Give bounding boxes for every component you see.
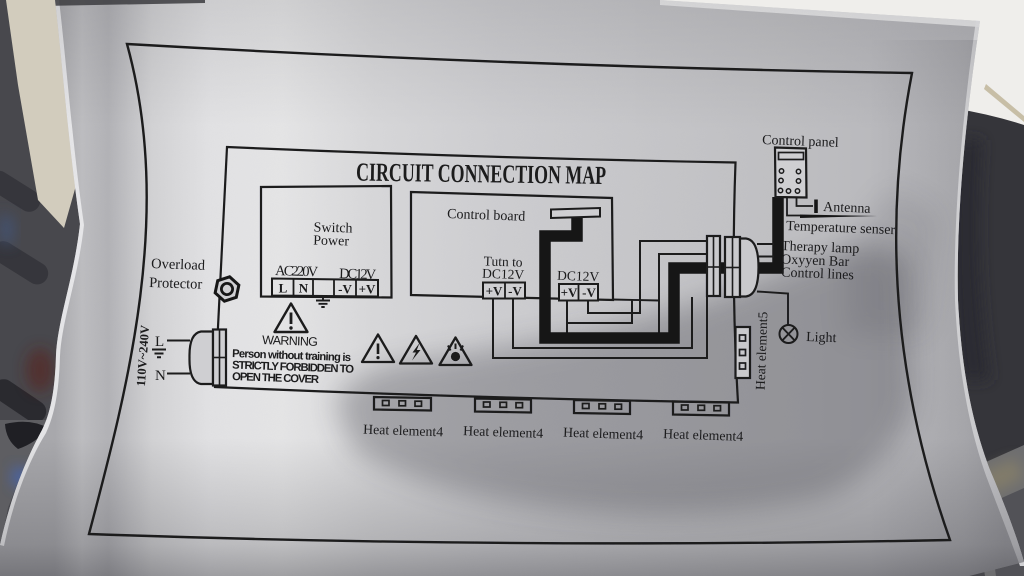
svg-text:-V: -V xyxy=(582,285,596,300)
svg-text:Heat element5: Heat element5 xyxy=(753,311,771,390)
svg-text:WARNING: WARNING xyxy=(262,333,319,349)
svg-text:+V: +V xyxy=(486,284,503,299)
svg-text:Light: Light xyxy=(806,330,837,346)
svg-text:Heat element4: Heat element4 xyxy=(363,422,444,440)
svg-text:Heat element4: Heat element4 xyxy=(563,425,644,443)
svg-text:Control board: Control board xyxy=(447,207,526,225)
svg-text:DC12V: DC12V xyxy=(557,268,600,284)
svg-text:-V: -V xyxy=(508,284,522,299)
svg-text:-V: -V xyxy=(338,282,352,297)
svg-text:N: N xyxy=(299,281,309,296)
svg-text:L: L xyxy=(155,334,164,350)
svg-text:Antenna: Antenna xyxy=(823,200,872,217)
svg-text:DC12V: DC12V xyxy=(482,266,525,282)
svg-text:Control lines: Control lines xyxy=(781,266,854,284)
svg-text:Heat element4: Heat element4 xyxy=(663,426,744,444)
svg-text:CIRCUIT CONNECTION MAP: CIRCUIT CONNECTION MAP xyxy=(356,158,606,190)
svg-text:L: L xyxy=(279,281,288,296)
svg-text:+V: +V xyxy=(359,282,376,297)
svg-text:Heat element4: Heat element4 xyxy=(463,423,544,441)
svg-text:Power: Power xyxy=(313,234,349,250)
svg-text:Overload: Overload xyxy=(151,256,206,274)
svg-text:N: N xyxy=(155,368,166,384)
svg-text:Protector: Protector xyxy=(149,275,203,293)
svg-text:+V: +V xyxy=(561,285,578,300)
